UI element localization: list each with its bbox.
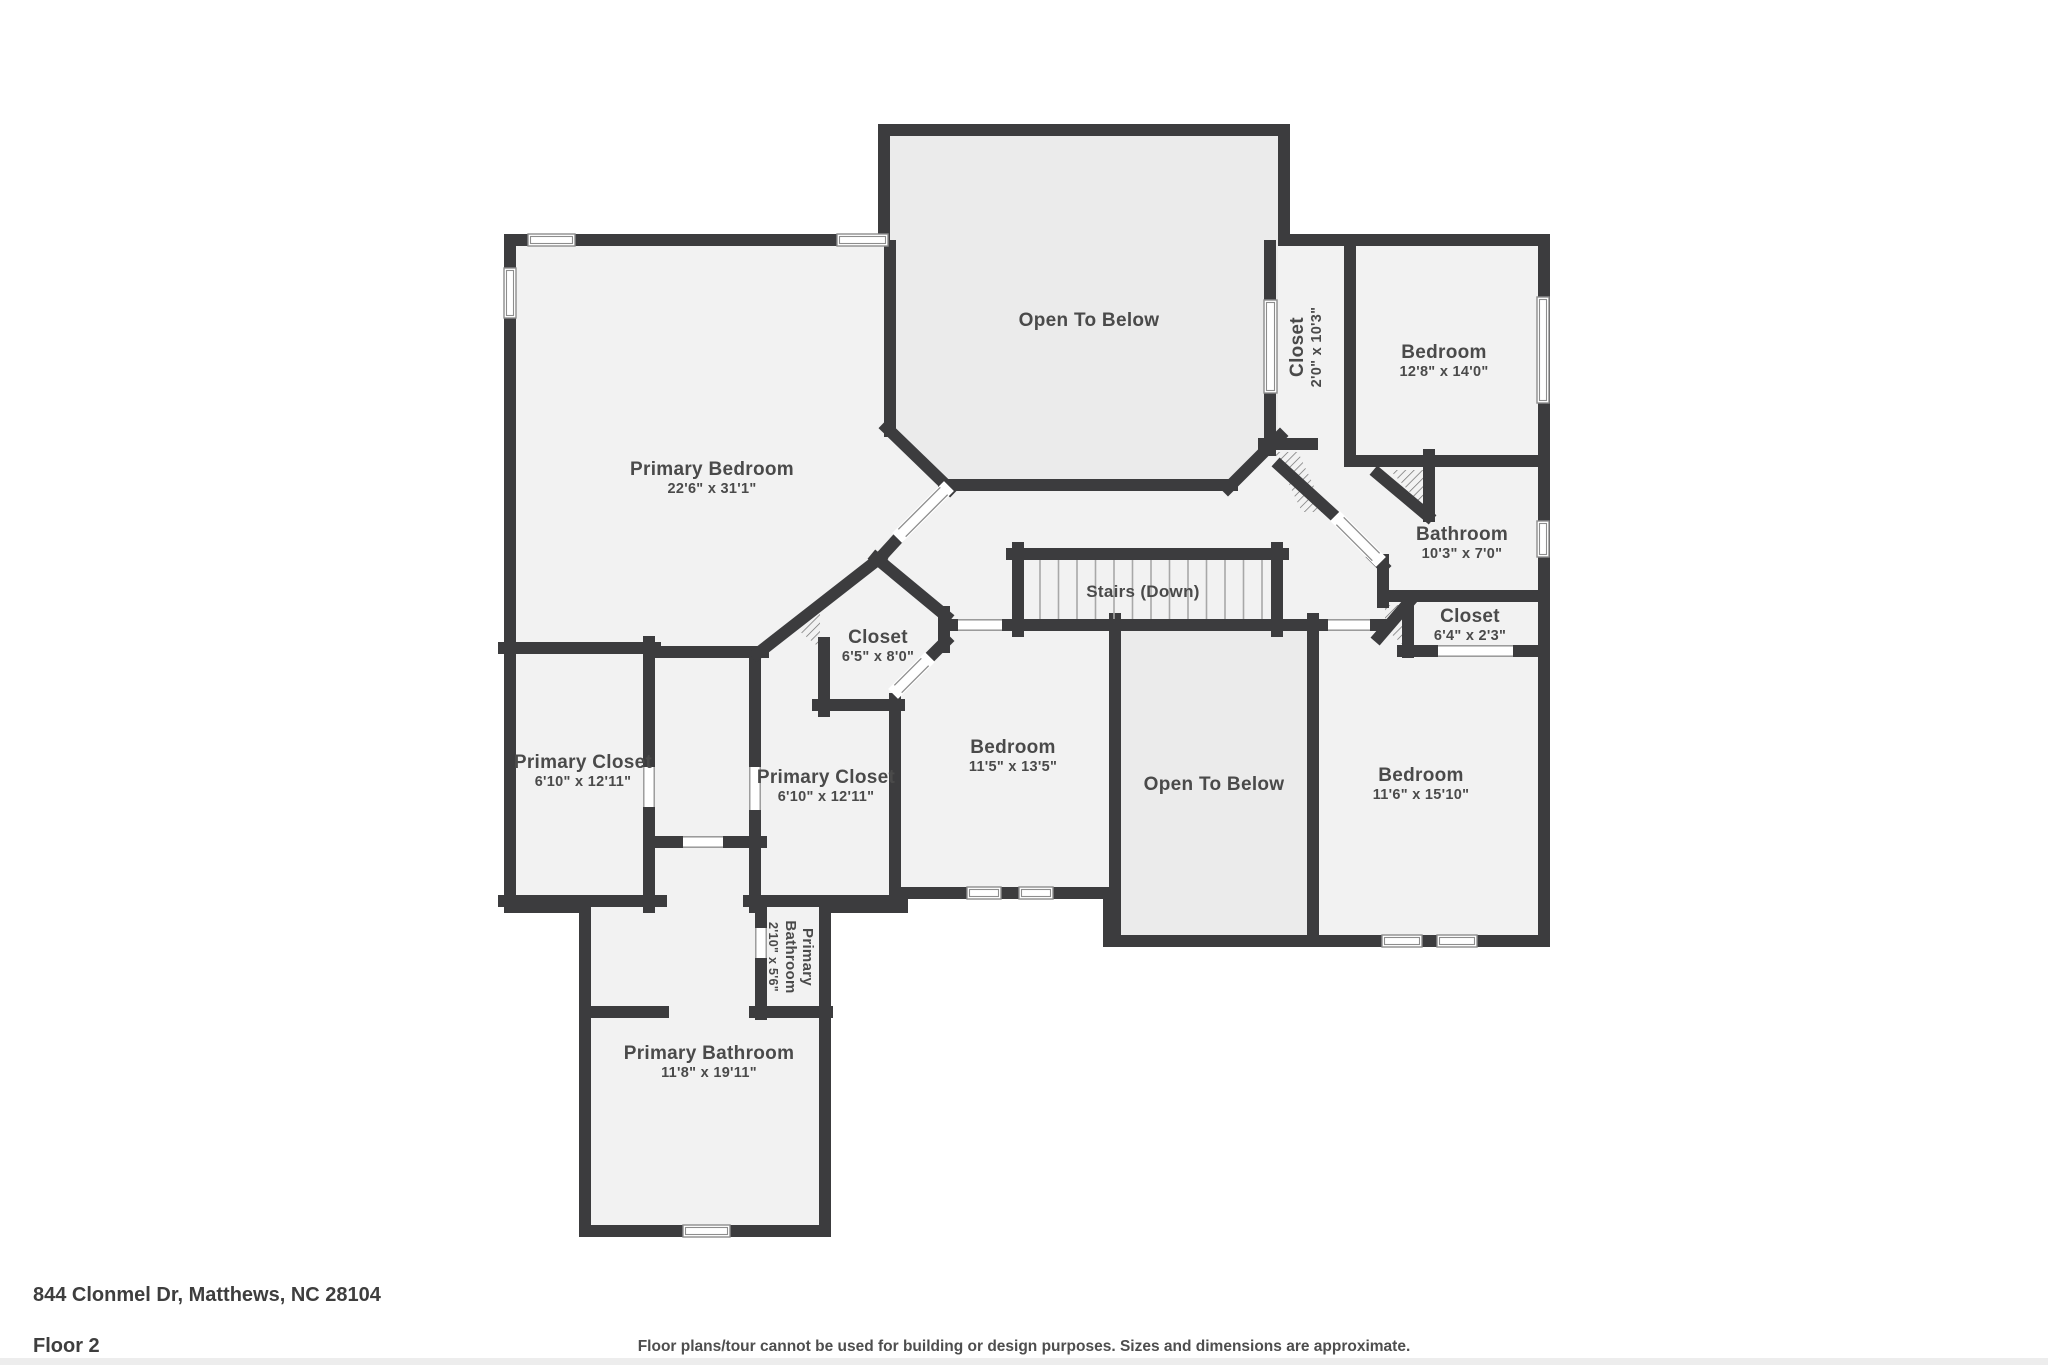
room-label-open-to-below-center: Open To Below (1144, 774, 1285, 795)
svg-text:Stairs (Down): Stairs (Down) (1086, 582, 1199, 601)
room-label-bedroom-top-right: Bedroom12'8" x 14'0" (1399, 342, 1488, 380)
svg-text:Closet: Closet (1440, 606, 1500, 627)
svg-text:10'3" x 7'0": 10'3" x 7'0" (1422, 546, 1503, 562)
svg-text:2'0" x 10'3": 2'0" x 10'3" (1309, 307, 1325, 388)
svg-text:Bathroom: Bathroom (782, 920, 799, 993)
property-address: 844 Clonmel Dr, Matthews, NC 28104 (33, 1284, 381, 1307)
svg-text:12'8" x 14'0": 12'8" x 14'0" (1399, 364, 1488, 380)
svg-text:Bathroom: Bathroom (1416, 524, 1508, 545)
room-label-open-to-below-top: Open To Below (1019, 310, 1160, 331)
svg-text:22'6" x 31'1": 22'6" x 31'1" (667, 481, 756, 497)
svg-text:Open To Below: Open To Below (1019, 310, 1160, 331)
svg-text:6'10" x 12'11": 6'10" x 12'11" (535, 774, 632, 790)
svg-text:Bedroom: Bedroom (1378, 765, 1464, 786)
floor-plan-page: Primary Bedroom22'6" x 31'1"Open To Belo… (0, 0, 2048, 1365)
svg-text:Closet: Closet (1287, 317, 1308, 377)
svg-text:6'10" x 12'11": 6'10" x 12'11" (778, 789, 875, 805)
svg-text:11'5" x 13'5": 11'5" x 13'5" (969, 759, 1057, 775)
room-label-stairs-label: Stairs (Down) (1086, 582, 1199, 601)
room-label-closet-top: Closet2'0" x 10'3" (1287, 307, 1325, 388)
disclaimer-text: Floor plans/tour cannot be used for buil… (0, 1338, 2048, 1356)
svg-text:Primary Bathroom: Primary Bathroom (624, 1043, 795, 1064)
svg-text:6'5" x 8'0": 6'5" x 8'0" (842, 649, 914, 665)
svg-text:Bedroom: Bedroom (1401, 342, 1487, 363)
svg-text:Open To Below: Open To Below (1144, 774, 1285, 795)
svg-text:Bedroom: Bedroom (970, 737, 1056, 758)
room-label-bedroom-116: Bedroom11'6" x 15'10" (1373, 765, 1470, 803)
svg-text:Primary Bedroom: Primary Bedroom (630, 459, 794, 480)
svg-text:11'8" x 19'11": 11'8" x 19'11" (661, 1065, 757, 1081)
room-label-closet-64: Closet6'4" x 2'3" (1434, 606, 1506, 644)
room-label-primary-bathroom-small: PrimaryBathroom2'10" x 5'6" (766, 920, 816, 993)
room-label-closet-octagon: Closet6'5" x 8'0" (842, 627, 914, 665)
room-label-bathroom: Bathroom10'3" x 7'0" (1416, 524, 1508, 562)
svg-text:11'6" x 15'10": 11'6" x 15'10" (1373, 787, 1470, 803)
room-label-bedroom-115: Bedroom11'5" x 13'5" (969, 737, 1057, 775)
svg-text:6'4" x 2'3": 6'4" x 2'3" (1434, 628, 1506, 644)
svg-text:Primary Closet: Primary Closet (757, 767, 896, 788)
svg-text:Closet: Closet (848, 627, 908, 648)
floor-plan-drawing: Primary Bedroom22'6" x 31'1"Open To Belo… (0, 0, 2048, 1365)
svg-text:2'10" x 5'6": 2'10" x 5'6" (766, 922, 780, 992)
bottom-strip (0, 1358, 2048, 1365)
svg-text:Primary Closet: Primary Closet (514, 752, 653, 773)
svg-text:Primary: Primary (799, 928, 816, 986)
